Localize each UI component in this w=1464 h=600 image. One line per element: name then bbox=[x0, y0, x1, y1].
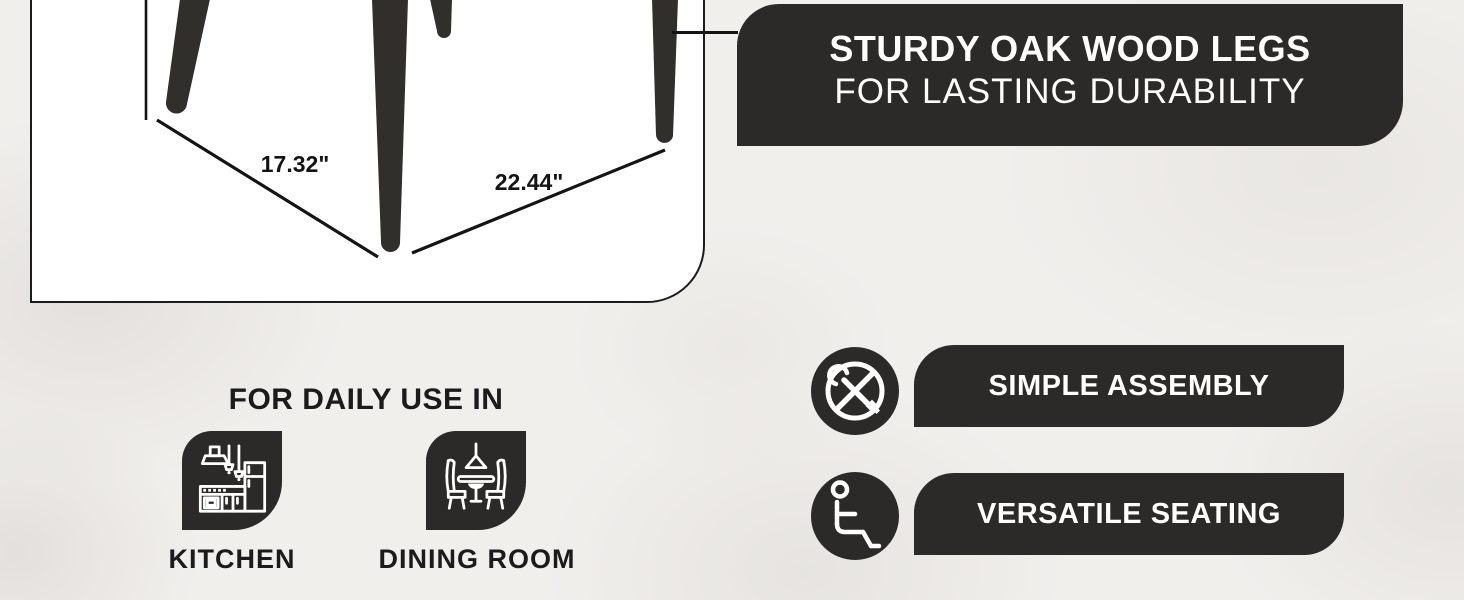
banner-title: STURDY OAK WOOD LEGS bbox=[737, 27, 1403, 71]
daily-use-heading: FOR DAILY USE IN bbox=[216, 383, 516, 417]
feature-label: SIMPLE ASSEMBLY bbox=[989, 370, 1270, 403]
dining-room-icon bbox=[426, 431, 526, 530]
chair-leg-right bbox=[652, 0, 678, 143]
dining-room-tile bbox=[426, 431, 526, 530]
no-tools-badge bbox=[811, 347, 899, 435]
feature-label: VERSATILE SEATING bbox=[977, 498, 1281, 531]
product-image-panel: 17.32" 22.44" bbox=[30, 0, 705, 303]
dimension-line-depth bbox=[412, 150, 665, 253]
seating-badge bbox=[811, 472, 899, 560]
kitchen-tile bbox=[182, 431, 282, 530]
dimension-depth-label: 22.44" bbox=[495, 169, 563, 195]
callout-connector-line bbox=[672, 31, 738, 34]
kitchen-icon bbox=[182, 431, 282, 530]
dimension-width-label: 17.32" bbox=[261, 151, 329, 177]
kitchen-label: KITCHEN bbox=[152, 544, 312, 575]
dimension-line-width bbox=[157, 120, 378, 257]
chair-legs-dimension-drawing: 17.32" 22.44" bbox=[32, 0, 703, 301]
chair-leg-front-left bbox=[166, 0, 210, 114]
banner-subtitle: FOR LASTING DURABILITY bbox=[737, 71, 1403, 113]
chair-leg-front-center bbox=[372, 0, 408, 252]
seated-person-icon bbox=[811, 472, 899, 560]
feature-banner: STURDY OAK WOOD LEGS FOR LASTING DURABIL… bbox=[737, 4, 1403, 146]
no-tools-icon bbox=[811, 347, 899, 435]
dining-room-label: DINING ROOM bbox=[367, 544, 587, 575]
chair-leg-back-stub bbox=[430, 0, 452, 38]
feature-pill-simple-assembly: SIMPLE ASSEMBLY bbox=[914, 345, 1344, 427]
feature-pill-versatile-seating: VERSATILE SEATING bbox=[914, 473, 1344, 555]
